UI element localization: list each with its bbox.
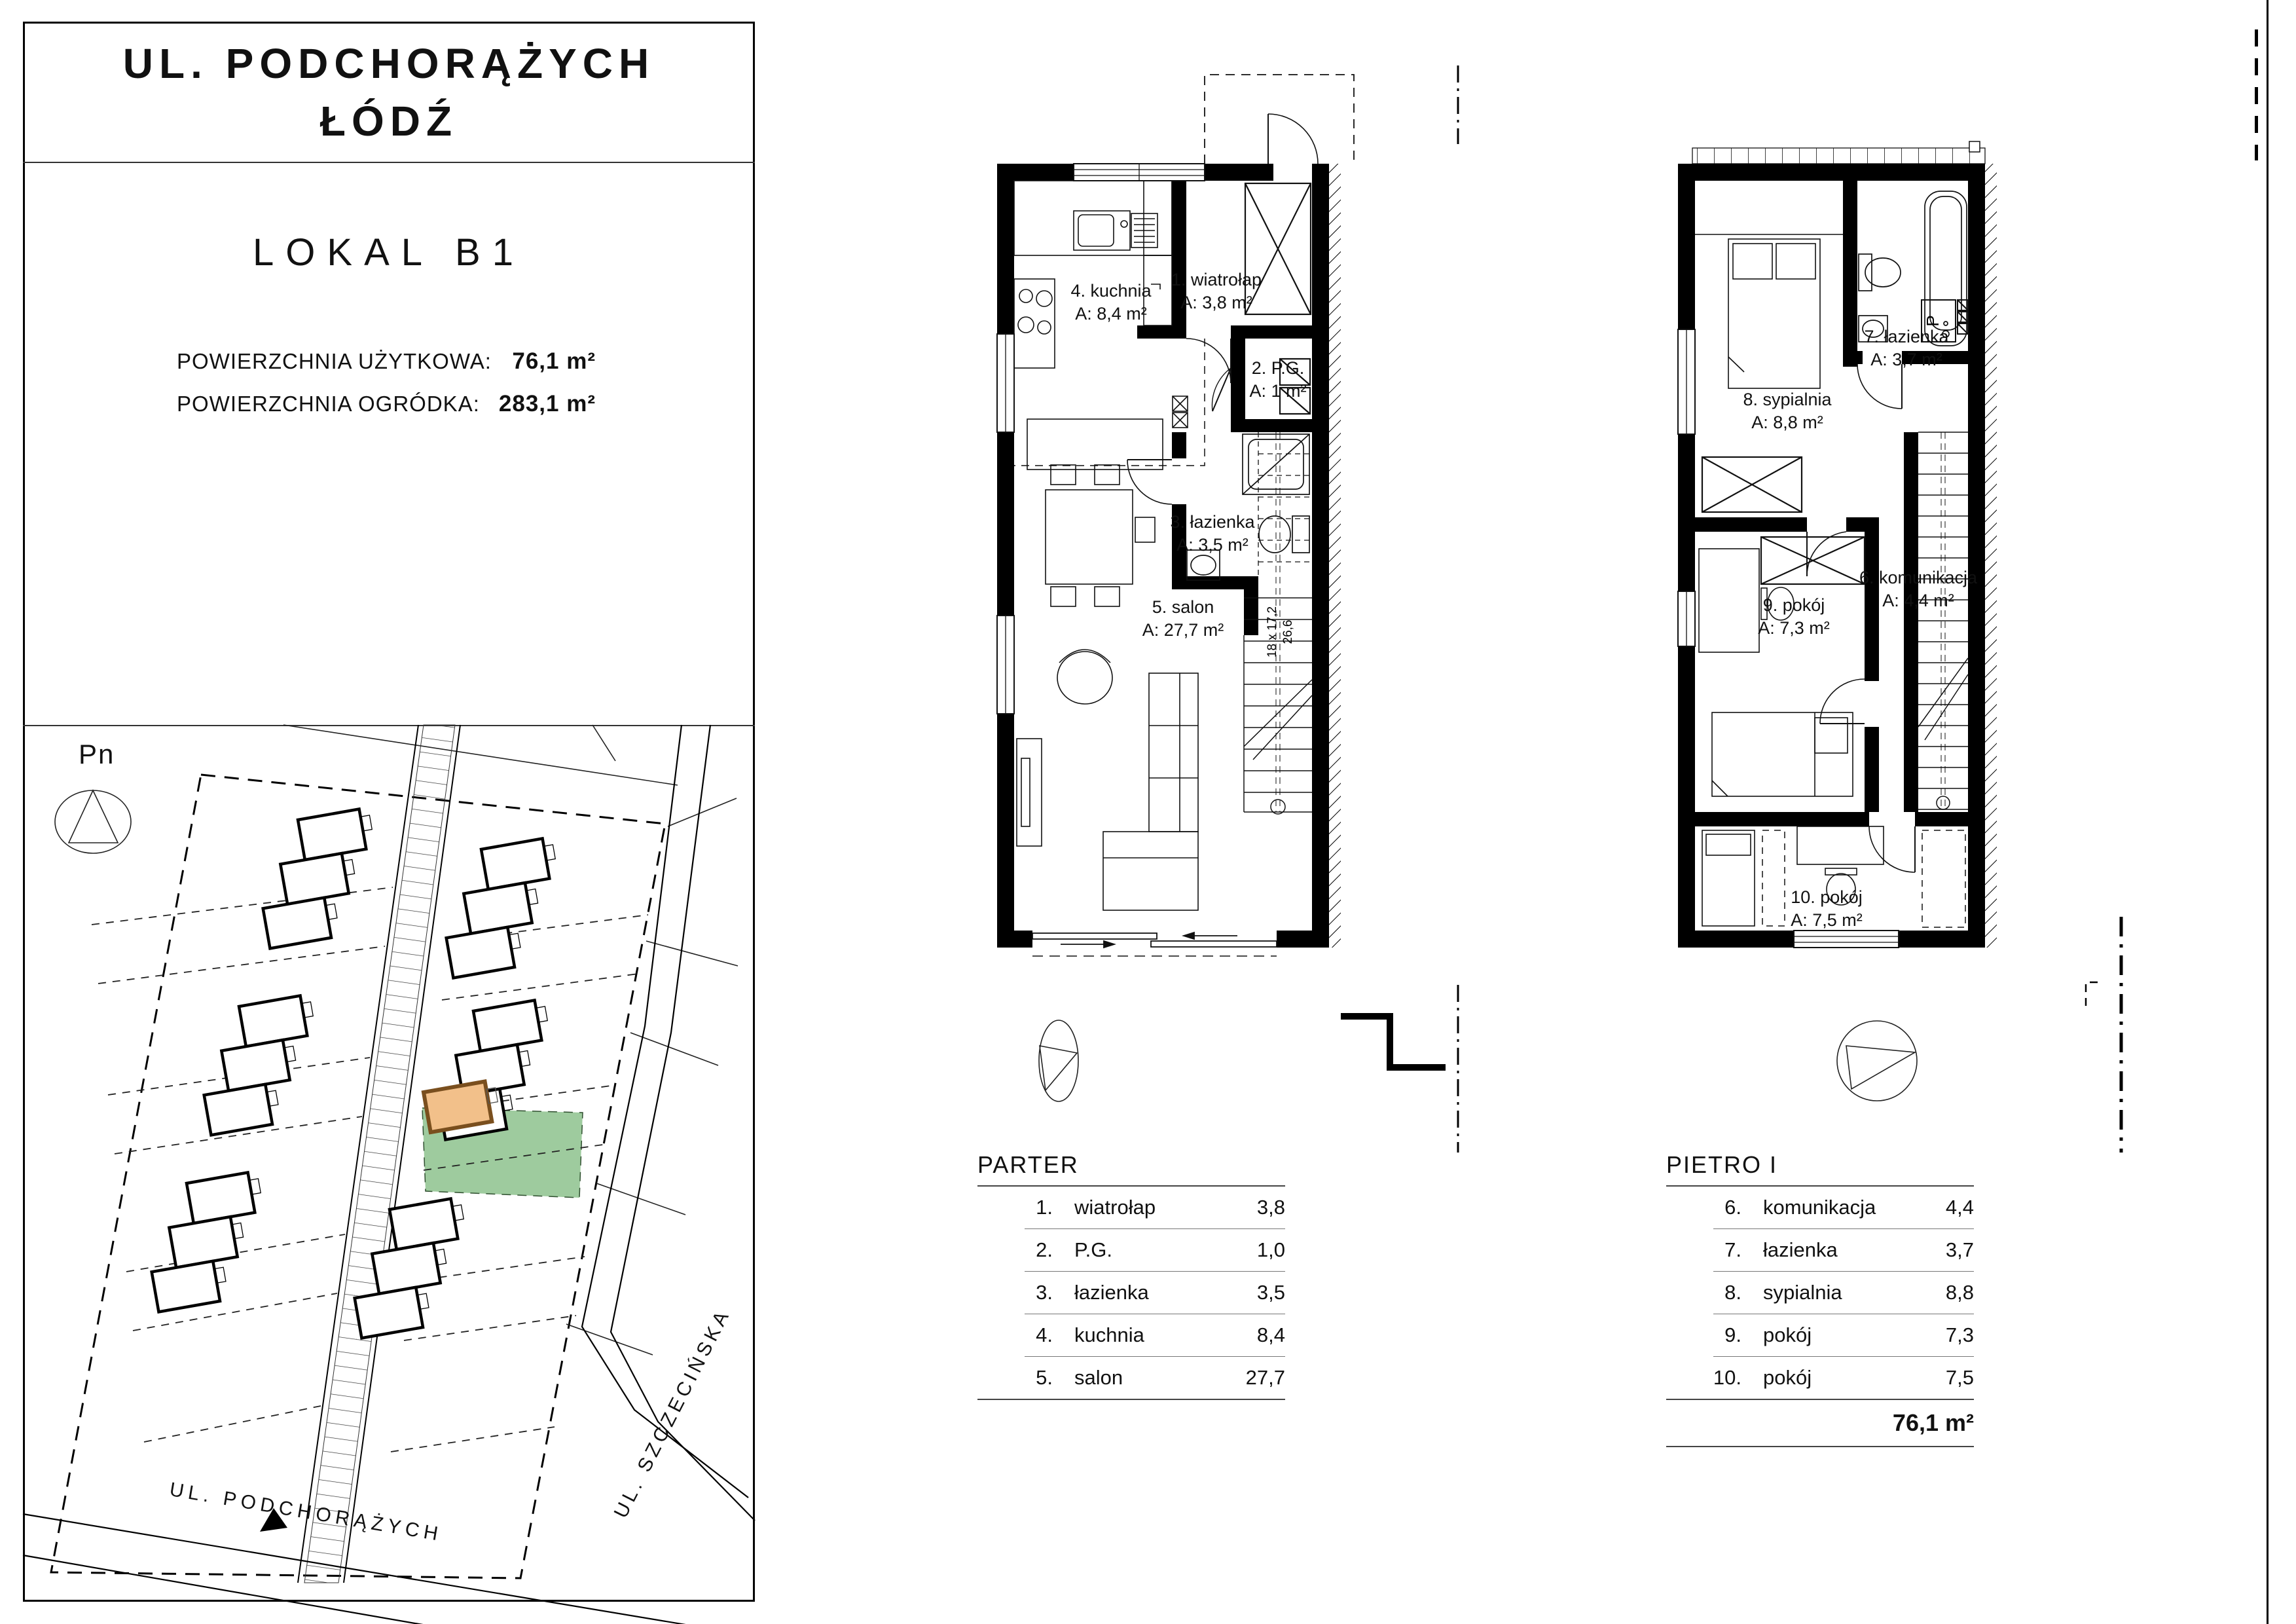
room-label-lazienka-parter: 3. łazienka A: 3,5 m² <box>1170 511 1254 557</box>
room-label-kuchnia: 4. kuchnia A: 8,4 m² <box>1070 280 1151 325</box>
row-area: 27,7 <box>1246 1366 1285 1390</box>
property-line-dashes <box>2255 29 2258 160</box>
table-row: 2. P.G. 1,0 <box>977 1229 1285 1271</box>
row-name: łazienka <box>1074 1281 1257 1304</box>
parter-north-compass-icon <box>1039 1020 1078 1101</box>
row-name: łazienka <box>1763 1238 1946 1262</box>
sheet-border-line <box>2267 0 2269 1624</box>
row-name: pokój <box>1763 1366 1946 1390</box>
room-name: 10. pokój <box>1791 886 1863 909</box>
row-name: P.G. <box>1074 1238 1257 1262</box>
pietro-table-title: PIETRO I <box>1666 1151 1974 1185</box>
row-area: 4,4 <box>1946 1196 1974 1219</box>
room-label-pokoj-9: 9. pokój A: 7,3 m² <box>1758 594 1830 640</box>
row-area: 8,8 <box>1946 1281 1974 1304</box>
room-name: 3. łazienka <box>1170 511 1254 534</box>
row-num: 9. <box>1666 1323 1741 1347</box>
stairs-going-label: 26,6 <box>1281 620 1295 644</box>
row-num: 5. <box>977 1366 1053 1390</box>
room-area: A: 3,8 m² <box>1171 291 1262 314</box>
table-row: 6. komunikacja 4,4 <box>1666 1187 1974 1228</box>
room-name: 6. komunikacja <box>1859 566 1977 589</box>
table-row: 7. łazienka 3,7 <box>1666 1229 1974 1271</box>
room-label-pg: 2. P.G. A: 1 m² <box>1249 357 1306 403</box>
garden-area-line: POWIERZCHNIA OGRÓDKA: 283,1 m² <box>177 390 596 418</box>
garden-area-label: POWIERZCHNIA OGRÓDKA: <box>177 392 480 416</box>
room-label-lazienka-pietro: 7. łazienka A: 3,7 m² <box>1864 325 1948 371</box>
room-area: A: 4,4 m² <box>1859 589 1977 612</box>
room-area: A: 7,5 m² <box>1791 909 1863 932</box>
row-area: 1,0 <box>1257 1238 1285 1262</box>
pietro-total-area: 76,1 m² <box>1666 1400 1974 1446</box>
table-row: 9. pokój 7,3 <box>1666 1314 1974 1356</box>
table-row: 10. pokój 7,5 <box>1666 1357 1974 1399</box>
parter-table-title: PARTER <box>977 1151 1285 1185</box>
row-num: 6. <box>1666 1196 1741 1219</box>
row-name: pokój <box>1763 1323 1946 1347</box>
row-num: 1. <box>977 1196 1053 1219</box>
unit-title: LOKAL B1 <box>23 231 755 274</box>
row-name: kuchnia <box>1074 1323 1257 1347</box>
room-name: 7. łazienka <box>1864 325 1948 348</box>
garden-area-value: 283,1 m² <box>499 391 596 417</box>
row-num: 8. <box>1666 1281 1741 1304</box>
room-area: A: 1 m² <box>1249 380 1306 403</box>
row-name: sypialnia <box>1763 1281 1946 1304</box>
room-label-sypialnia: 8. sypialnia A: 8,8 m² <box>1743 388 1831 434</box>
row-area: 3,7 <box>1946 1238 1974 1262</box>
table-row: 4. kuchnia 8,4 <box>977 1314 1285 1356</box>
row-num: 2. <box>977 1238 1053 1262</box>
room-area: A: 8,4 m² <box>1070 303 1151 325</box>
table-row: 1. wiatrołap 3,8 <box>977 1187 1285 1228</box>
room-label-salon: 5. salon A: 27,7 m² <box>1142 596 1224 642</box>
row-area: 3,8 <box>1257 1196 1285 1219</box>
table-row: 3. łazienka 3,5 <box>977 1272 1285 1314</box>
street-title-line1: UL. PODCHORĄŻYCH <box>23 39 755 88</box>
parter-table: PARTER 1. wiatrołap 3,8 2. P.G. 1,0 3. ł… <box>977 1151 1285 1400</box>
row-num: 7. <box>1666 1238 1741 1262</box>
row-name: komunikacja <box>1763 1196 1946 1219</box>
row-area: 7,5 <box>1946 1366 1974 1390</box>
room-label-komunikacja: 6. komunikacja A: 4,4 m² <box>1859 566 1977 612</box>
room-name: 9. pokój <box>1758 594 1830 617</box>
stairs-riser-label: 18 x 17,2 <box>1266 606 1279 657</box>
room-name: 8. sypialnia <box>1743 388 1831 411</box>
pietro-table: PIETRO I 6. komunikacja 4,4 7. łazienka … <box>1666 1151 1974 1447</box>
room-label-pokoj-10: 10. pokój A: 7,5 m² <box>1791 886 1863 932</box>
row-name: salon <box>1074 1366 1246 1390</box>
room-area: A: 3,5 m² <box>1170 534 1254 557</box>
room-name: 4. kuchnia <box>1070 280 1151 303</box>
room-label-wiatrolap: 1. wiatrołap A: 3,8 m² <box>1171 268 1262 314</box>
panel-divider-top <box>23 162 755 163</box>
row-num: 10. <box>1666 1366 1741 1390</box>
room-name: 5. salon <box>1142 596 1224 619</box>
row-num: 4. <box>977 1323 1053 1347</box>
floor-plan-parter-drawing: 18 x 17,2 26,6 <box>982 65 1506 1153</box>
row-area: 3,5 <box>1257 1281 1285 1304</box>
usable-area-value: 76,1 m² <box>512 348 596 375</box>
table-row: 5. salon 27,7 <box>977 1357 1285 1399</box>
usable-area-label: POWIERZCHNIA UŻYTKOWA: <box>177 349 492 374</box>
row-name: wiatrołap <box>1074 1196 1257 1219</box>
usable-area-line: POWIERZCHNIA UŻYTKOWA: 76,1 m² <box>177 347 596 376</box>
room-area: A: 8,8 m² <box>1743 411 1831 434</box>
room-area: A: 3,7 m² <box>1864 348 1948 371</box>
north-label: Pn <box>79 739 115 770</box>
room-name: 2. P.G. <box>1249 357 1306 380</box>
row-area: 7,3 <box>1946 1323 1974 1347</box>
pietro-north-compass-icon <box>1837 1021 1917 1101</box>
site-north-compass-icon <box>55 790 131 853</box>
street-title-line2: ŁÓDŹ <box>23 97 755 145</box>
table-row: 8. sypialnia 8,8 <box>1666 1272 1974 1314</box>
room-area: A: 27,7 m² <box>1142 619 1224 642</box>
row-area: 8,4 <box>1257 1323 1285 1347</box>
room-name: 1. wiatrołap <box>1171 268 1262 291</box>
room-area: A: 7,3 m² <box>1758 617 1830 640</box>
row-num: 3. <box>977 1281 1053 1304</box>
